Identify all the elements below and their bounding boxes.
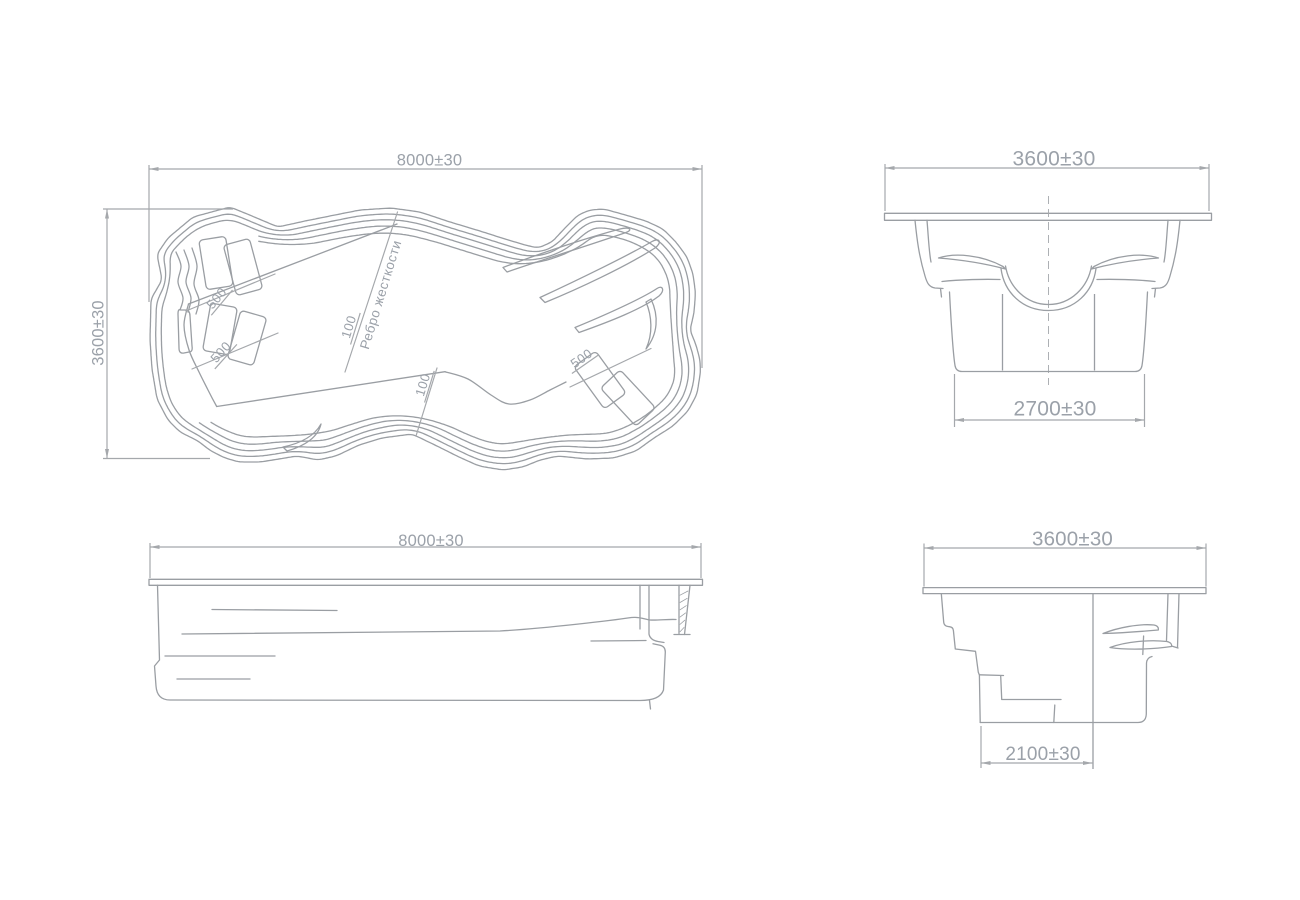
svg-text:3600±30: 3600±30 [1032, 527, 1113, 550]
svg-text:2700±30: 2700±30 [1013, 398, 1096, 421]
svg-text:3600±30: 3600±30 [1012, 148, 1095, 171]
svg-text:8000±30: 8000±30 [397, 152, 463, 170]
svg-text:3600±30: 3600±30 [90, 300, 108, 366]
svg-text:8000±30: 8000±30 [398, 532, 464, 550]
svg-text:2100±30: 2100±30 [1005, 744, 1080, 765]
